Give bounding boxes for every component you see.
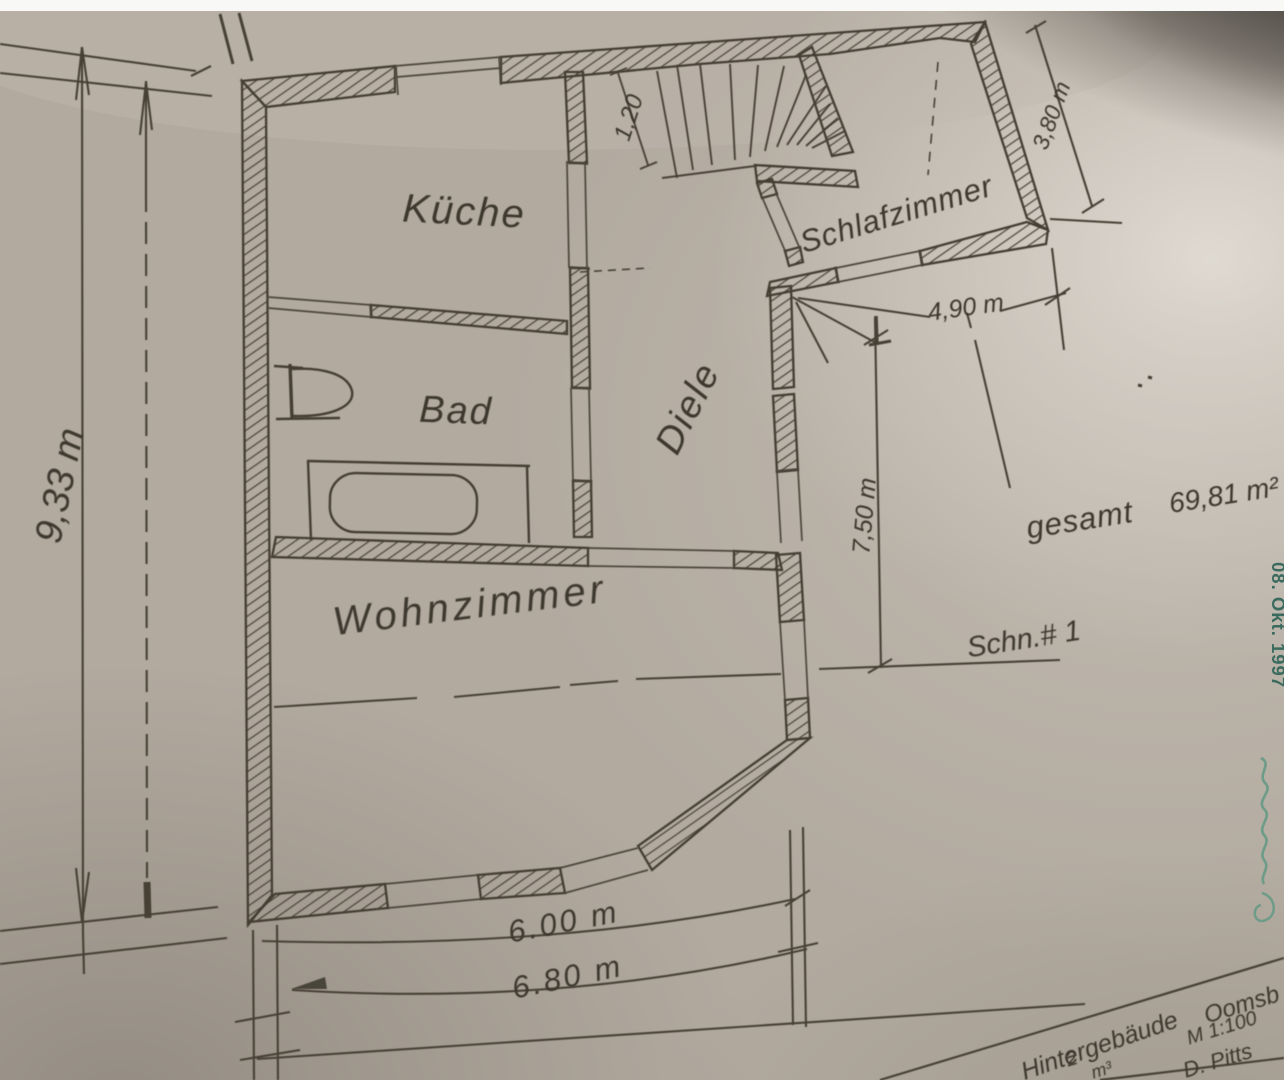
svg-text:Bad: Bad — [419, 389, 494, 434]
svg-text:08. Okt. 1997: 08. Okt. 1997 — [1268, 562, 1284, 688]
svg-text:Küche: Küche — [401, 186, 527, 236]
